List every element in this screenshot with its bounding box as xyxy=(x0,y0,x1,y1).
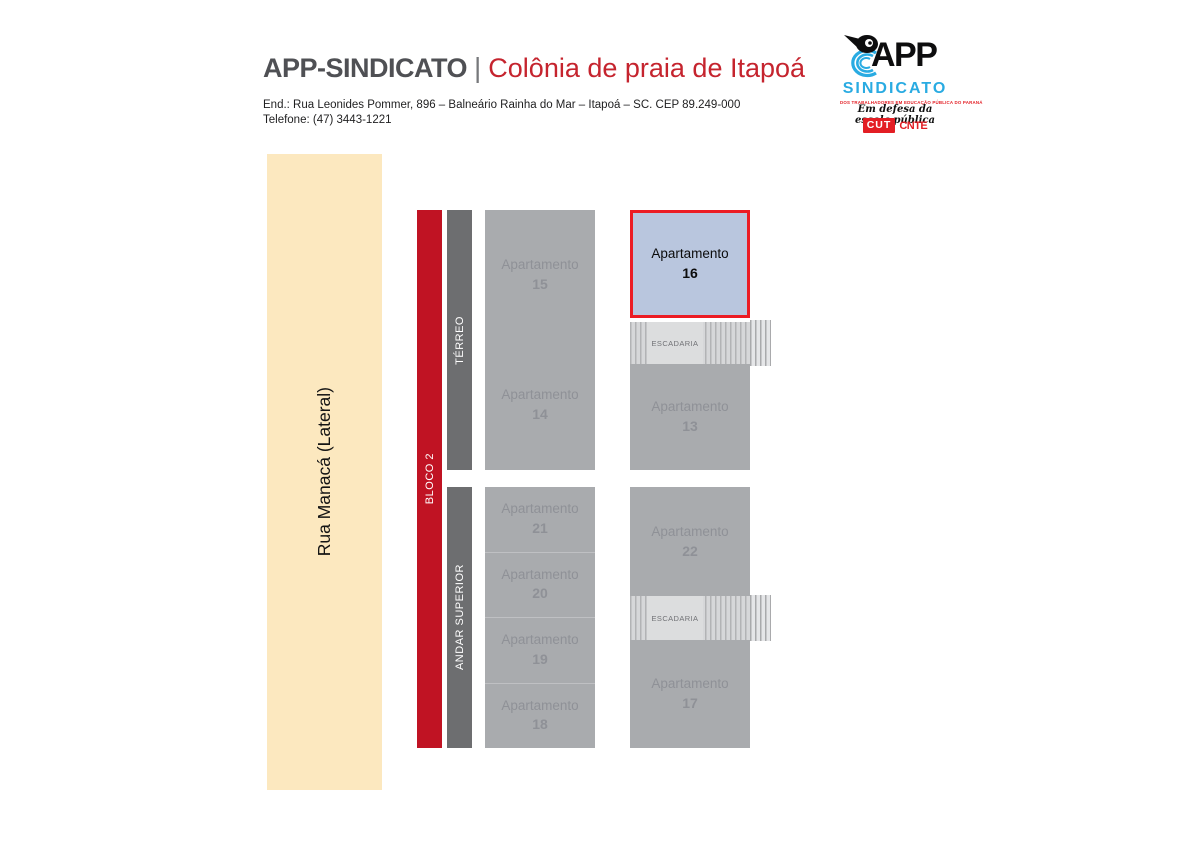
apartment-19: Apartamento19 xyxy=(485,617,595,683)
cut-badge: CUT xyxy=(863,118,896,133)
escadaria-bottom-labelbox: ESCADARIA xyxy=(647,596,703,640)
escadaria-top-extension xyxy=(750,320,771,366)
andar-superior-label: ANDAR SUPERIOR xyxy=(454,564,466,670)
contact-block: End.: Rua Leonides Pommer, 896 – Balneár… xyxy=(263,98,740,128)
flyer-page: APP-SINDICATO|Colônia de praia de Itapoá… xyxy=(0,0,1200,848)
street-strip: Rua Manacá (Lateral) xyxy=(267,154,382,790)
apartment-22: Apartamento22 xyxy=(630,487,750,597)
logo-sindicato-text: SINDICATO xyxy=(840,80,950,98)
terreo-label: TÉRREO xyxy=(454,316,466,365)
escadaria-top: ESCADARIA xyxy=(630,322,750,364)
apartment-20: Apartamento20 xyxy=(485,552,595,618)
bloco-2-bar: BLOCO 2 xyxy=(417,210,442,748)
escadaria-bottom: ESCADARIA xyxy=(630,596,750,640)
street-label: Rua Manacá (Lateral) xyxy=(314,387,335,556)
apartment-21: Apartamento21 xyxy=(485,487,595,552)
app-sindicato-logo: APP SINDICATO DOS TRABALHADORES EM EDUCA… xyxy=(840,33,954,137)
apartment-15: Apartamento15 xyxy=(485,210,595,340)
org-name: APP-SINDICATO xyxy=(263,53,467,83)
title-separator: | xyxy=(474,52,481,83)
escadaria-bottom-label: ESCADARIA xyxy=(652,614,699,623)
page-title: APP-SINDICATO|Colônia de praia de Itapoá xyxy=(263,52,805,84)
union-badges: CUT CNTE xyxy=(840,118,950,133)
escadaria-top-label: ESCADARIA xyxy=(652,339,699,348)
block-apartments-21-18: Apartamento21 Apartamento20 Apartamento1… xyxy=(485,487,595,748)
logo-app-text: APP xyxy=(871,36,936,75)
terreo-bar: TÉRREO xyxy=(447,210,472,470)
escadaria-top-labelbox: ESCADARIA xyxy=(647,322,703,364)
block-apartments-15-14: Apartamento15 Apartamento14 xyxy=(485,210,595,470)
address-line: End.: Rua Leonides Pommer, 896 – Balneár… xyxy=(263,98,740,113)
apartment-13: Apartamento13 xyxy=(630,364,750,470)
escadaria-bottom-extension xyxy=(750,595,771,641)
andar-superior-bar: ANDAR SUPERIOR xyxy=(447,487,472,748)
phone-line: Telefone: (47) 3443-1221 xyxy=(263,113,740,128)
apartment-17: Apartamento17 xyxy=(630,641,750,748)
apartment-18: Apartamento18 xyxy=(485,683,595,749)
apartment-16-highlighted: Apartamento16 xyxy=(630,210,750,318)
apartment-14: Apartamento14 xyxy=(485,340,595,470)
bloco-2-label: BLOCO 2 xyxy=(424,453,436,504)
cnte-badge: CNTE xyxy=(899,120,927,132)
location-name: Colônia de praia de Itapoá xyxy=(488,53,805,83)
